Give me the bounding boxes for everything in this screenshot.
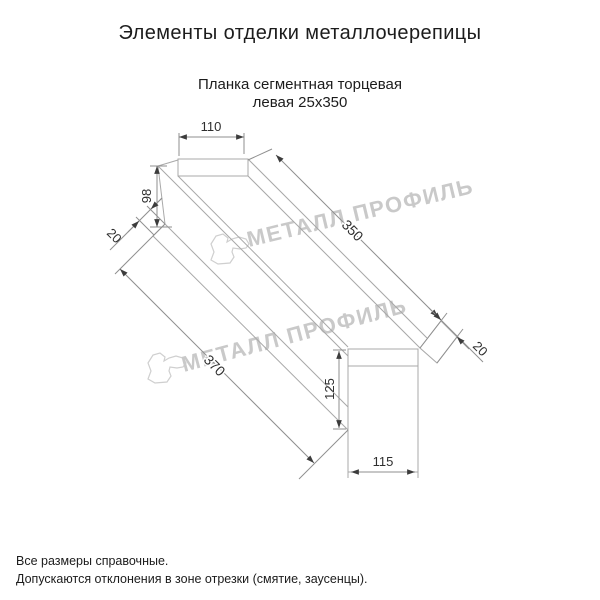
dimension-110: 110 (179, 119, 244, 156)
dimension-125: 125 (322, 350, 346, 429)
dimension-115: 115 (351, 454, 415, 472)
footer-notes: Все размеры справочные. Допускаются откл… (16, 552, 368, 588)
dim-20-right-label: 20 (470, 338, 491, 359)
dim-125-label: 125 (322, 378, 337, 400)
dim-20-left-label: 20 (104, 225, 125, 246)
note-line-2: Допускаются отклонения в зоне отрезки (с… (16, 570, 368, 588)
watermark-upper: МЕТАЛЛ ПРОФИЛЬ (211, 173, 476, 264)
dimension-20-left: 20 (104, 198, 165, 250)
watermark-text: МЕТАЛЛ ПРОФИЛЬ (244, 173, 476, 252)
page: Элементы отделки металлочерепицы Планка … (0, 0, 600, 600)
dim-98-label: 98 (139, 189, 154, 203)
dim-110-label: 110 (201, 119, 222, 134)
technical-drawing: МЕТАЛЛ ПРОФИЛЬ МЕТАЛЛ ПРОФИЛЬ (0, 0, 600, 600)
dim-115-label: 115 (373, 454, 394, 469)
note-line-1: Все размеры справочные. (16, 552, 368, 570)
